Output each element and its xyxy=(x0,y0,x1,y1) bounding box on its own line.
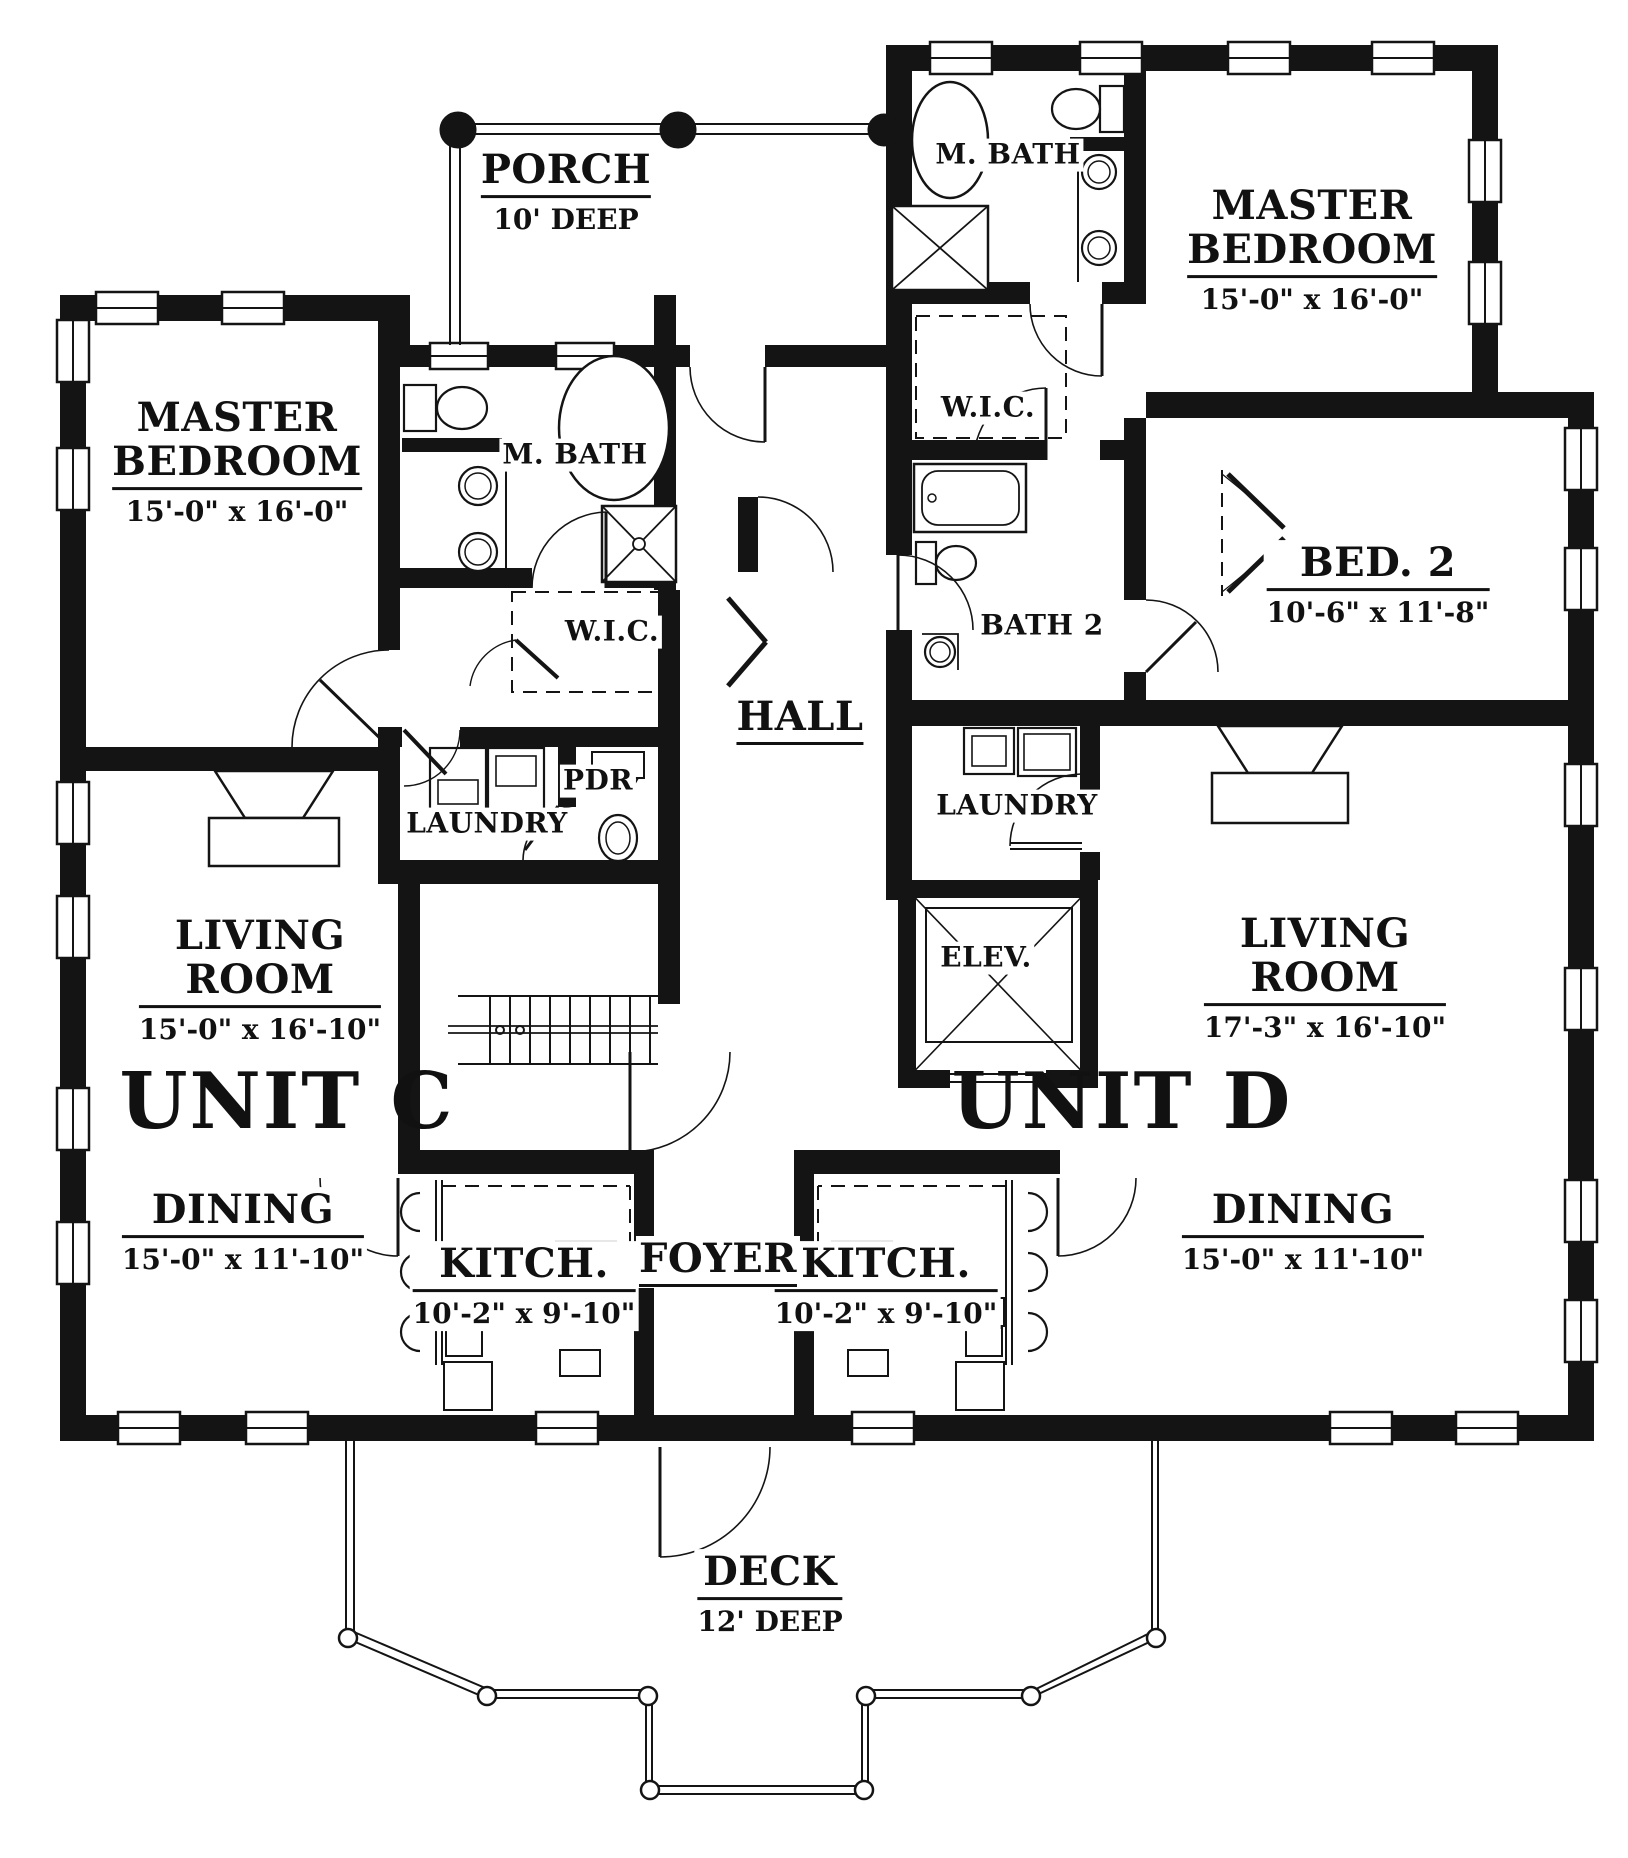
room-label-laundry-d: LAUNDRY xyxy=(933,790,1101,823)
room-label-wic-c: W.I.C. xyxy=(562,616,662,649)
room-label-hall: HALL xyxy=(733,694,866,746)
stairs xyxy=(448,996,658,1064)
floor-plan: PORCH10' DEEP M. BATH MASTER BEDROOM 15'… xyxy=(0,0,1628,1858)
room-label-pdr: PDR xyxy=(560,765,636,798)
room-label-living-d: LIVING ROOM 17'-3" x 16'-10" xyxy=(1201,911,1449,1045)
laundry-d-fixtures xyxy=(964,728,1076,776)
room-label-bed2: BED. 210'-6" x 11'-8" xyxy=(1264,540,1493,630)
bath-fixtures-unit-d xyxy=(892,82,1124,290)
fireplace-unit-c xyxy=(209,771,339,866)
room-label-mbath-c: M. BATH xyxy=(499,439,650,472)
room-label-kitch-c: KITCH.10'-2" x 9'-10" xyxy=(410,1241,639,1331)
room-label-bath2: BATH 2 xyxy=(977,610,1106,643)
room-label-elev: ELEV. xyxy=(937,942,1034,975)
unit-label-c: UNIT C xyxy=(116,1058,457,1146)
room-label-porch: PORCH10' DEEP xyxy=(478,147,654,237)
room-label-dining-d: DINING15'-0" x 11'-10" xyxy=(1179,1187,1427,1277)
room-label-kitch-d: KITCH.10'-2" x 9'-10" xyxy=(772,1241,1001,1331)
door-arcs xyxy=(292,304,1218,1557)
room-label-deck: DECK12' DEEP xyxy=(694,1549,845,1639)
room-label-foyer: FOYER xyxy=(636,1236,800,1288)
room-label-living-c: LIVING ROOM 15'-0" x 16'-10" xyxy=(136,913,384,1047)
room-label-master-c: MASTER BEDROOM 15'-0" x 16'-0" xyxy=(109,395,365,529)
fireplace-unit-d xyxy=(1212,726,1348,823)
room-label-master-d: MASTER BEDROOM 15'-0" x 16'-0" xyxy=(1184,183,1440,317)
room-label-wic-d: W.I.C. xyxy=(938,392,1038,425)
room-label-dining-c: DINING15'-0" x 11'-10" xyxy=(119,1187,367,1277)
room-label-mbath-d: M. BATH xyxy=(932,139,1083,172)
unit-label-d: UNIT D xyxy=(949,1058,1296,1146)
elevator xyxy=(902,884,1094,1084)
room-label-laundry-c: LAUNDRY xyxy=(403,808,571,841)
